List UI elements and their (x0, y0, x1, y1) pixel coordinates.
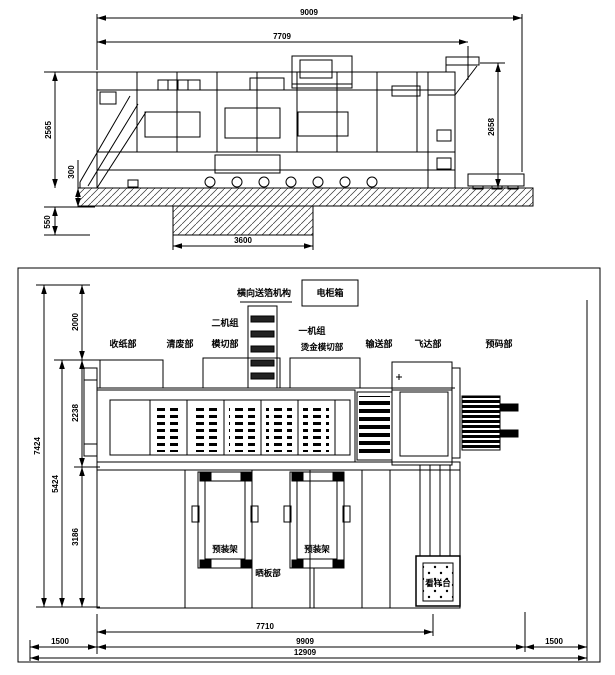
label-unit1-line1: 一机组 (298, 325, 325, 336)
feeder-section-plan (392, 362, 460, 465)
dim-label-7709: 7709 (273, 32, 291, 41)
dim-7710 (97, 614, 433, 654)
label-convey: 输送部 (365, 338, 392, 349)
label-stripping: 清废部 (166, 338, 193, 349)
dim-label-1500-right: 1500 (545, 637, 563, 646)
dim-label-2238: 2238 (71, 404, 80, 422)
floor-footprint (97, 462, 460, 608)
dim-label-2000: 2000 (71, 313, 80, 331)
dim-1500-right (525, 300, 587, 661)
side-elevation-view: 9009 7709 2565 300 550 (43, 8, 533, 250)
label-foil-feed: 横向送箔机构 (237, 287, 291, 298)
conveyor-section (357, 392, 392, 460)
dim-label-2658: 2658 (487, 118, 496, 136)
prestack-comb (462, 396, 518, 450)
label-rack-2: 预装架 (304, 544, 330, 554)
foil-feed-tower (240, 302, 292, 388)
dim-label-3186: 3186 (71, 528, 80, 546)
label-unit1-line2: 烫金模切部 (301, 342, 344, 352)
dim-label-2565: 2565 (44, 121, 53, 139)
label-electric-cabinet: 电柜箱 (316, 287, 343, 298)
dim-label-7424: 7424 (33, 437, 42, 455)
drawing-sheet: 9009 7709 2565 300 550 (0, 0, 615, 675)
label-rack-1: 预装架 (212, 544, 238, 554)
pallet-platform-side (468, 174, 524, 189)
dim-7424 (36, 285, 100, 607)
dim-label-300: 300 (67, 165, 76, 179)
label-prestack: 预码部 (485, 338, 512, 349)
delivery-end-cap (84, 368, 97, 456)
label-sample-table: 看样台 (424, 578, 451, 588)
dim-label-3600: 3600 (234, 236, 252, 245)
label-unit2-line1: 二机组 (211, 317, 238, 328)
machine-body-side (97, 72, 455, 188)
dim-5424 (54, 360, 100, 607)
feeder-cabinet-side (428, 57, 479, 188)
machine-drawing: 9009 7709 2565 300 550 (0, 0, 615, 675)
dim-label-1500-left: 1500 (51, 637, 69, 646)
dim-label-9909: 9909 (296, 637, 314, 646)
left-guard-rail (80, 96, 146, 188)
label-delivery: 收纸部 (109, 338, 136, 349)
dim-label-9009: 9009 (300, 8, 318, 17)
label-unit2-line2: 模切部 (211, 338, 238, 349)
dim-label-12909: 12909 (294, 648, 317, 657)
dim-label-5424: 5424 (51, 475, 60, 493)
dim-9009 (97, 14, 522, 172)
machine-casters (128, 177, 377, 187)
plan-view: 7424 5424 2000 2238 3186 7710 (18, 268, 600, 662)
label-plate-section: 晒板部 (255, 568, 281, 578)
label-feeder: 飞达部 (414, 338, 441, 349)
premount-rack-2 (284, 472, 350, 608)
ground-foundation (78, 188, 533, 235)
dim-label-7710: 7710 (256, 622, 274, 631)
dim-label-550: 550 (43, 215, 52, 229)
dim-7709 (97, 42, 468, 80)
machine-main-body-plan (97, 390, 355, 462)
